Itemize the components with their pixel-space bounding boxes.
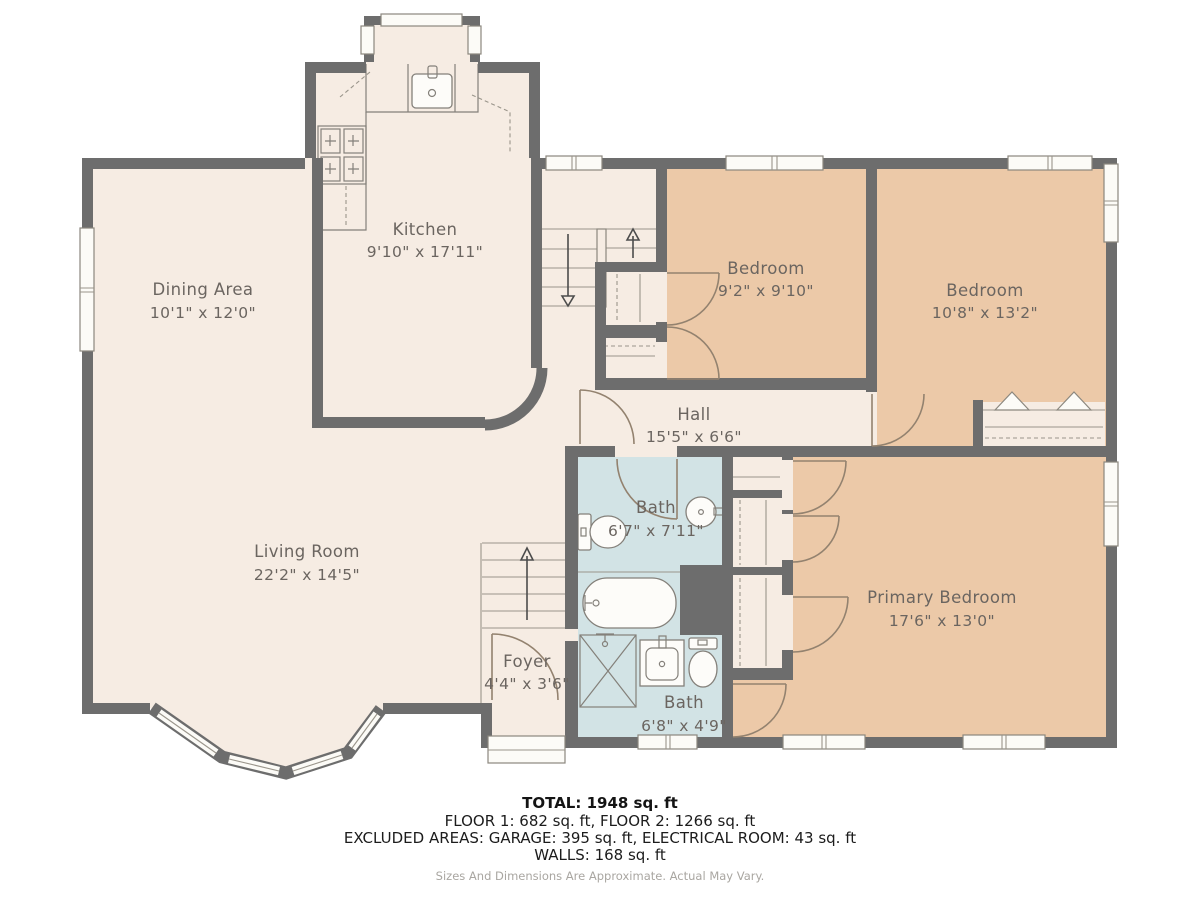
window-primary-right (1104, 462, 1118, 546)
room-label-foyer: Foyer (503, 652, 551, 671)
window-dining (80, 228, 94, 351)
room-dims-bedroom2: 10'8" x 13'2" (932, 304, 1038, 322)
summary-block: TOTAL: 1948 sq. ft FLOOR 1: 682 sq. ft, … (344, 794, 856, 883)
room-label-bath1: Bath (636, 498, 676, 517)
room-label-living: Living Room (254, 542, 360, 561)
room-dims-primary: 17'6" x 13'0" (889, 612, 995, 630)
room-label-hall: Hall (677, 405, 710, 424)
window-bath2-bottom (638, 735, 697, 749)
room-label-dining: Dining Area (153, 280, 254, 299)
bathtub (583, 578, 676, 628)
room-dims-bedroom1: 9'2" x 9'10" (718, 282, 814, 300)
window-primary-bottom2 (963, 735, 1045, 749)
room-dims-bath1: 6'7" x 7'11" (608, 522, 704, 540)
window-primary-bottom1 (783, 735, 865, 749)
room-label-bath2: Bath (664, 693, 704, 712)
summary-disclaimer: Sizes And Dimensions Are Approximate. Ac… (436, 869, 765, 883)
window-bedroom1-top (726, 156, 823, 170)
room-dims-kitchen: 9'10" x 17'11" (367, 243, 483, 261)
window-bedroom2-top (1008, 156, 1092, 170)
room-dims-hall: 15'5" x 6'6" (646, 428, 742, 446)
room-dims-dining: 10'1" x 12'0" (150, 304, 256, 322)
summary-total: TOTAL: 1948 sq. ft (522, 794, 678, 812)
room-dims-living: 22'2" x 14'5" (254, 566, 360, 584)
window-nook-top (381, 14, 462, 26)
room-label-primary: Primary Bedroom (867, 588, 1017, 607)
room-label-kitchen: Kitchen (393, 220, 458, 239)
room-label-bedroom1: Bedroom (727, 259, 804, 278)
window-nook-right (468, 26, 481, 54)
room-dims-bath2: 6'8" x 4'9" (641, 717, 727, 735)
kitchen-sink (412, 74, 452, 108)
room-dims-foyer: 4'4" x 3'6" (484, 675, 570, 693)
window-landing (546, 156, 602, 170)
floor-plan-page: Kitchen 9'10" x 17'11" Dining Area 10'1"… (0, 0, 1200, 900)
toilet-bowl-bath2 (689, 651, 717, 687)
toilet-tank-bath1 (578, 514, 591, 550)
floor-plan-canvas: Kitchen 9'10" x 17'11" Dining Area 10'1"… (0, 0, 1200, 900)
window-bedroom2-right (1104, 164, 1118, 242)
room-label-bedroom2: Bedroom (946, 281, 1023, 300)
summary-floors: FLOOR 1: 682 sq. ft, FLOOR 2: 1266 sq. f… (445, 812, 756, 830)
summary-walls: WALLS: 168 sq. ft (534, 846, 666, 864)
summary-excluded: EXCLUDED AREAS: GARAGE: 395 sq. ft, ELEC… (344, 829, 856, 847)
window-nook-left (361, 26, 374, 54)
